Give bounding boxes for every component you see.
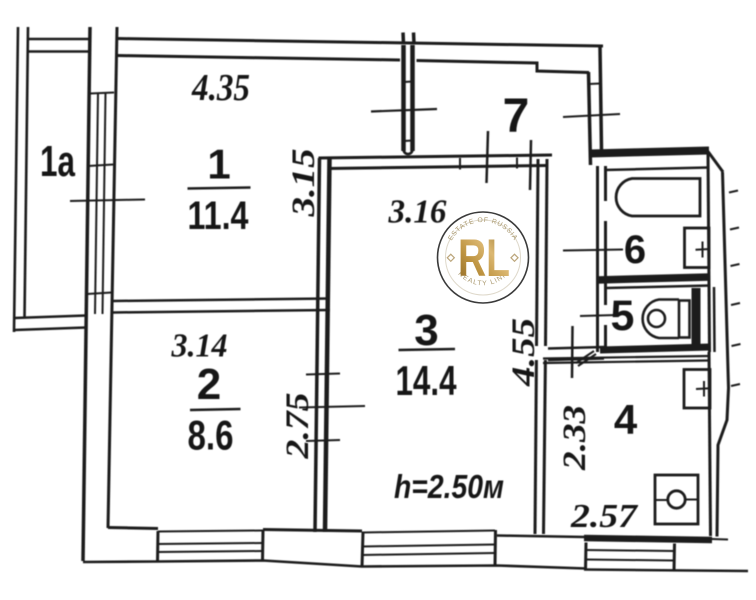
svg-text:7: 7 bbox=[503, 90, 530, 143]
svg-text:4.35: 4.35 bbox=[191, 67, 250, 109]
svg-text:2.57: 2.57 bbox=[570, 498, 639, 535]
svg-text:3.15: 3.15 bbox=[286, 149, 322, 218]
svg-text:3: 3 bbox=[414, 306, 438, 355]
svg-text:5: 5 bbox=[611, 292, 635, 340]
svg-text:4: 4 bbox=[614, 396, 638, 443]
svg-text:1a: 1a bbox=[40, 137, 75, 186]
svg-text:11.4: 11.4 bbox=[188, 194, 250, 238]
svg-text:RL: RL bbox=[458, 229, 510, 288]
svg-text:2: 2 bbox=[197, 360, 221, 409]
svg-text:3.16: 3.16 bbox=[388, 194, 447, 231]
svg-text:2.75: 2.75 bbox=[280, 393, 316, 460]
svg-text:8.6: 8.6 bbox=[188, 412, 234, 459]
svg-text:h=2.50м: h=2.50м bbox=[394, 468, 504, 505]
svg-text:1: 1 bbox=[207, 141, 230, 188]
svg-text:6: 6 bbox=[624, 228, 646, 272]
svg-text:2.33: 2.33 bbox=[557, 405, 593, 471]
svg-text:4.55: 4.55 bbox=[506, 318, 542, 387]
svg-text:14.4: 14.4 bbox=[396, 357, 457, 404]
svg-text:3.14: 3.14 bbox=[171, 328, 228, 365]
